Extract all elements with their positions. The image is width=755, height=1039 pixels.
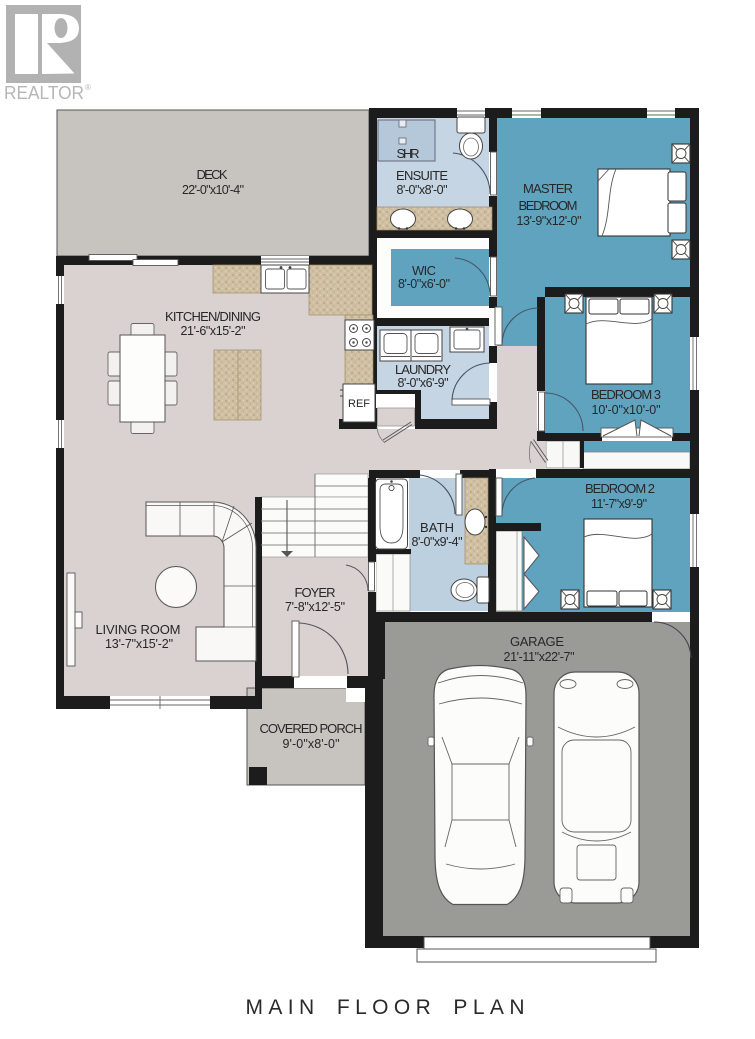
svg-text:WIC: WIC bbox=[412, 263, 436, 278]
svg-text:COVERED PORCH: COVERED PORCH bbox=[260, 721, 363, 736]
svg-text:REF: REF bbox=[348, 398, 370, 410]
svg-text:13'-7"x15'-2": 13'-7"x15'-2" bbox=[105, 637, 173, 651]
svg-text:GARAGE: GARAGE bbox=[510, 634, 564, 649]
svg-text:9'-0"x8'-0": 9'-0"x8'-0" bbox=[283, 737, 340, 751]
svg-text:LIVING ROOM: LIVING ROOM bbox=[96, 622, 181, 637]
svg-text:LAUNDRY: LAUNDRY bbox=[395, 362, 451, 377]
svg-text:MASTER: MASTER bbox=[523, 181, 573, 196]
svg-text:BEDROOM 2: BEDROOM 2 bbox=[585, 481, 655, 496]
svg-text:DECK: DECK bbox=[197, 167, 228, 182]
svg-text:10'-0"x10'-0": 10'-0"x10'-0" bbox=[592, 403, 661, 417]
svg-text:BEDROOM 3: BEDROOM 3 bbox=[591, 387, 661, 402]
svg-text:8'-0"x6'-9": 8'-0"x6'-9" bbox=[398, 376, 449, 390]
svg-text:11'-7"x9'-9": 11'-7"x9'-9" bbox=[591, 497, 647, 511]
svg-text:REALTOR: REALTOR bbox=[4, 83, 84, 103]
svg-text:21'-6"x15'-2": 21'-6"x15'-2" bbox=[181, 324, 246, 338]
svg-text:8'-0"x9'-4": 8'-0"x9'-4" bbox=[412, 535, 463, 549]
svg-text:7'-8"x12'-5": 7'-8"x12'-5" bbox=[285, 600, 345, 614]
svg-text:8'-0"x8'-0": 8'-0"x8'-0" bbox=[397, 183, 448, 197]
svg-text:ENSUITE: ENSUITE bbox=[396, 168, 448, 183]
svg-text:FOYER: FOYER bbox=[295, 585, 336, 600]
svg-text:8'-0"x6'-0": 8'-0"x6'-0" bbox=[398, 277, 450, 291]
svg-text:®: ® bbox=[85, 83, 91, 92]
svg-text:BATH: BATH bbox=[420, 520, 454, 535]
svg-text:22'-0"x10'-4": 22'-0"x10'-4" bbox=[182, 183, 244, 197]
svg-text:KITCHEN/DINING: KITCHEN/DINING bbox=[165, 309, 261, 324]
svg-text:13'-9"x12'-0": 13'-9"x12'-0" bbox=[517, 214, 582, 228]
svg-text:SHR: SHR bbox=[397, 146, 420, 161]
svg-text:BEDROOM: BEDROOM bbox=[519, 198, 578, 213]
svg-text:21'-11"x22'-7": 21'-11"x22'-7" bbox=[504, 650, 575, 664]
svg-text:MAIN FLOOR PLAN: MAIN FLOOR PLAN bbox=[246, 996, 531, 1019]
